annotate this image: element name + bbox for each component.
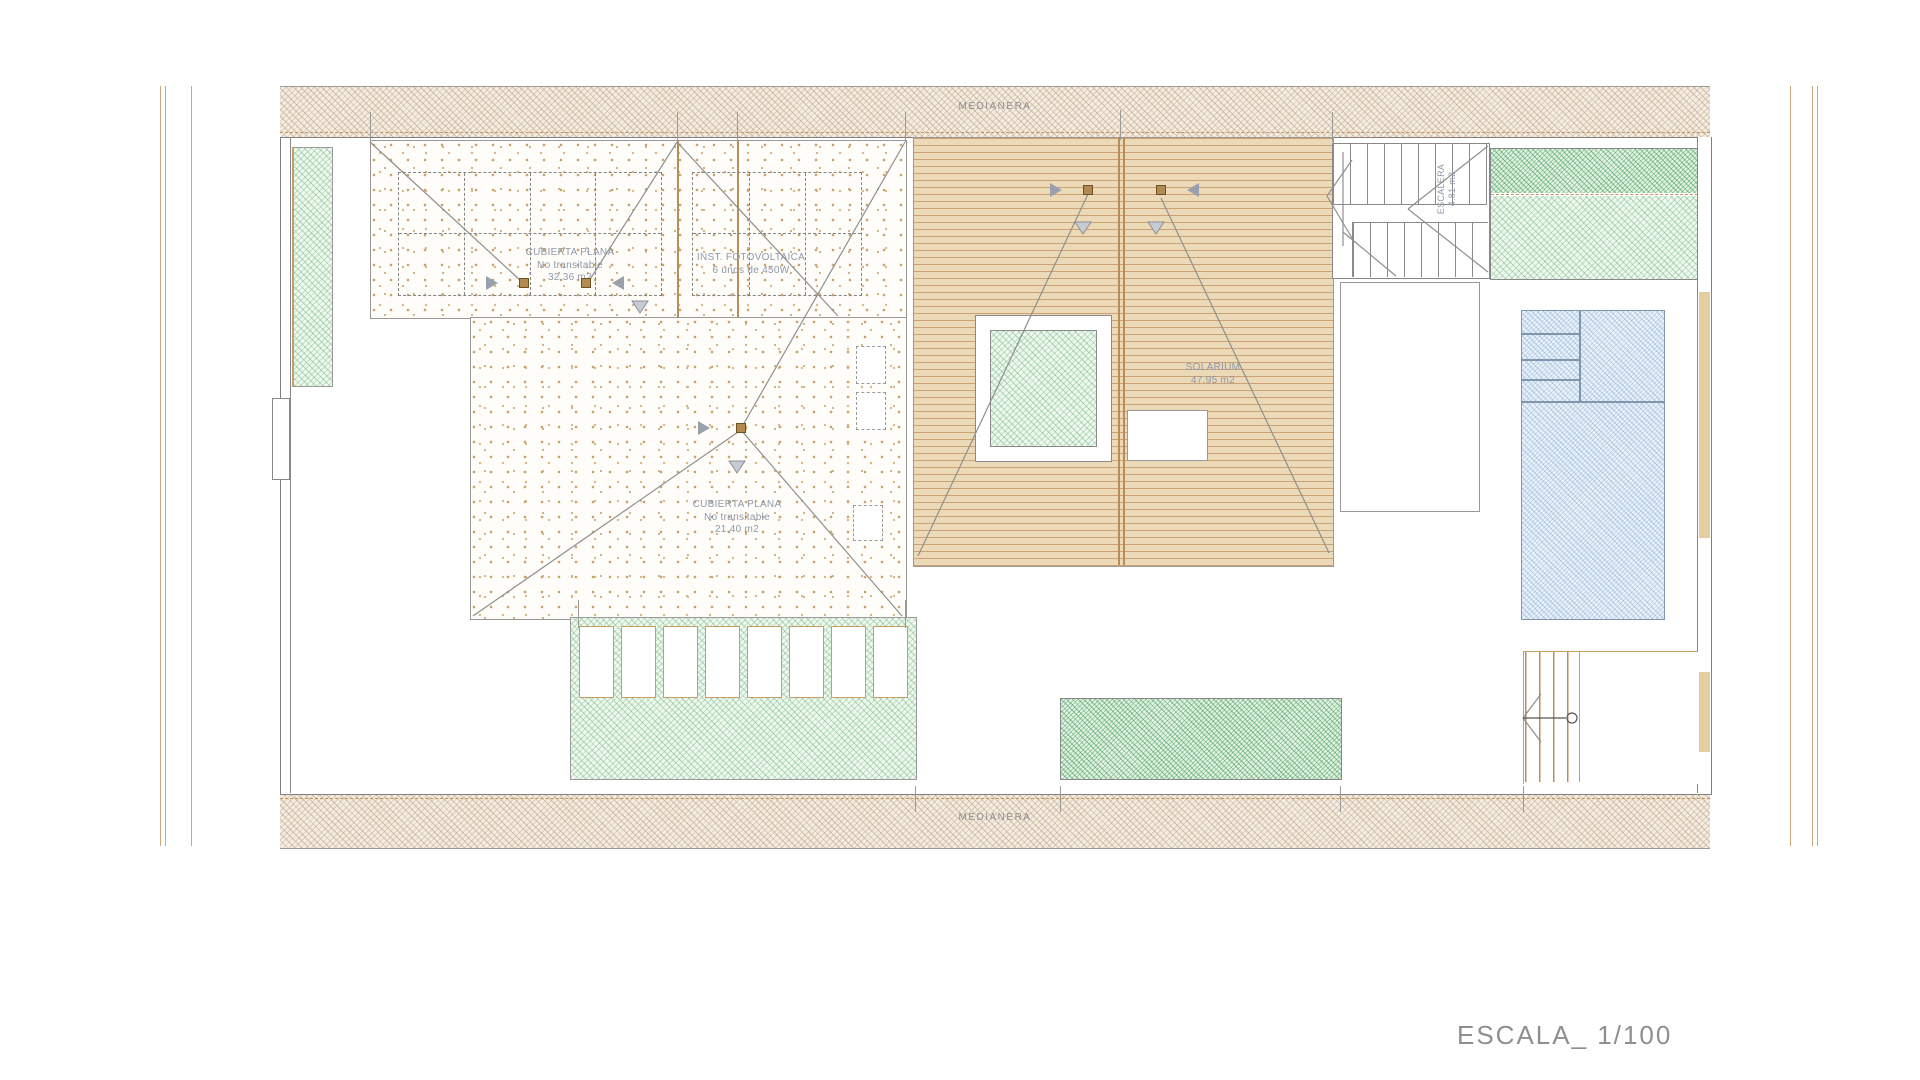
stairwell-void: [1340, 282, 1480, 512]
drawing-sheet: MEDIANERA MEDIANERA CUBIERTA PLANA No tr…: [0, 0, 1920, 1080]
dim-tick-9: [915, 786, 916, 812]
roof-secondary-note: No transitable: [657, 512, 817, 525]
dim-tick-4: [905, 112, 906, 142]
left-garden-strip: [292, 147, 333, 387]
pv-grid-b-mid: [693, 233, 861, 234]
solarium-title: SOLARIUM: [1133, 362, 1293, 375]
pergola-slat-3: [663, 626, 698, 698]
roof-secondary-area: 21.40 m2: [657, 524, 817, 537]
roof-hatch-box-2: [856, 392, 886, 430]
right-wall-opening-2: [1699, 672, 1710, 752]
pergola-terrace: [570, 617, 917, 780]
roof-garden-divider: [1491, 194, 1698, 195]
pool-step-divider: [1579, 311, 1581, 401]
pool-step-line-2: [1522, 359, 1579, 361]
deck-divider-line-1: [1118, 137, 1120, 565]
frame-line-left-outer2: [165, 86, 166, 846]
dim-tick-1: [370, 112, 371, 142]
roof-garden-dark-band: [1491, 149, 1698, 193]
deck-skylight-inner: [990, 330, 1097, 447]
right-wall-opening-1: [1699, 292, 1710, 538]
dim-tick-12: [1523, 786, 1524, 812]
roof-hatch-box-1: [856, 346, 886, 384]
patio-green: [1060, 698, 1342, 780]
solarium-area: 47.95 m2: [1133, 375, 1293, 388]
roof-secondary-title: CUBIERTA PLANA: [657, 499, 817, 512]
pool: [1521, 310, 1665, 620]
roof-hatch-box-3: [853, 505, 883, 541]
deck-divider-line-2: [1123, 137, 1125, 565]
frame-line-right-outer: [1812, 86, 1813, 846]
scale-label: ESCALA_ 1/100: [1457, 1020, 1672, 1051]
staircase-label: ESCALERA 4.81 m2: [1436, 137, 1458, 241]
roof-garden-topright: [1490, 148, 1699, 280]
photovoltaic-note: 6 unds de 450W: [670, 265, 832, 278]
roof-main-note: No transitable: [490, 260, 650, 273]
pv-panel-grid-b: [692, 172, 862, 296]
dim-tick-8: [905, 600, 906, 628]
pool-lane-divider: [1522, 401, 1664, 403]
pool-step-line-3: [1522, 379, 1579, 381]
pergola-slat-5: [747, 626, 782, 698]
photovoltaic-title: INST. FOTOVOLTAICA: [670, 252, 832, 265]
roof-secondary-block: [470, 317, 907, 620]
staircase-area: 4.81 m2: [1447, 137, 1458, 241]
frame-line-left-outer: [160, 86, 161, 846]
solarium-label: SOLARIUM 47.95 m2: [1133, 362, 1293, 387]
staircase-title: ESCALERA: [1436, 137, 1447, 241]
dim-tick-10: [1060, 786, 1061, 812]
pv-grid-a-mid: [399, 233, 661, 234]
dim-tick-11: [1340, 786, 1341, 812]
pv-grid-a-div1: [464, 173, 465, 295]
roof-main-title: CUBIERTA PLANA: [490, 247, 650, 260]
frame-line-right-outer2: [1817, 86, 1818, 846]
left-wall-window: [272, 398, 290, 480]
dim-tick-7: [578, 600, 579, 628]
deck-service-box: [1127, 410, 1208, 461]
dim-tick-2: [677, 112, 678, 142]
dim-tick-6: [1332, 112, 1333, 142]
staircase-bottom-treads: [1525, 652, 1580, 782]
roof-main-divider-1: [677, 140, 679, 317]
roof-main-area: 32.36 m2: [490, 272, 650, 285]
pergola-slat-4: [705, 626, 740, 698]
party-wall-top: MEDIANERA: [280, 86, 1710, 139]
staircase-upper-flight: [1333, 144, 1487, 205]
staircase-lower-flight: [1352, 222, 1488, 277]
dim-tick-5: [1120, 110, 1121, 140]
party-wall-bottom-label: MEDIANERA: [280, 812, 1710, 823]
party-wall-bottom: MEDIANERA: [280, 793, 1710, 849]
right-wall: [1697, 137, 1711, 793]
roof-secondary-label: CUBIERTA PLANA No transitable 21.40 m2: [657, 499, 817, 537]
party-wall-bottom-dashed-line: [280, 798, 1710, 799]
pergola-slat-2: [621, 626, 656, 698]
left-wall-inner-line: [290, 137, 291, 793]
frame-line-left-inner: [191, 86, 192, 846]
party-wall-top-label: MEDIANERA: [280, 101, 1710, 112]
pergola-slat-6: [789, 626, 824, 698]
frame-line-right-inner: [1790, 86, 1791, 846]
roof-garden-light-band: [1491, 196, 1698, 279]
dim-tick-3: [737, 112, 738, 142]
pergola-slat-1: [579, 626, 614, 698]
pergola-slat-7: [831, 626, 866, 698]
pergola-slat-8: [873, 626, 908, 698]
pool-step-line-1: [1522, 333, 1579, 335]
photovoltaic-label: INST. FOTOVOLTAICA 6 unds de 450W: [670, 252, 832, 277]
roof-main-label: CUBIERTA PLANA No transitable 32.36 m2: [490, 247, 650, 285]
party-wall-top-dashed-line: [280, 132, 1710, 133]
